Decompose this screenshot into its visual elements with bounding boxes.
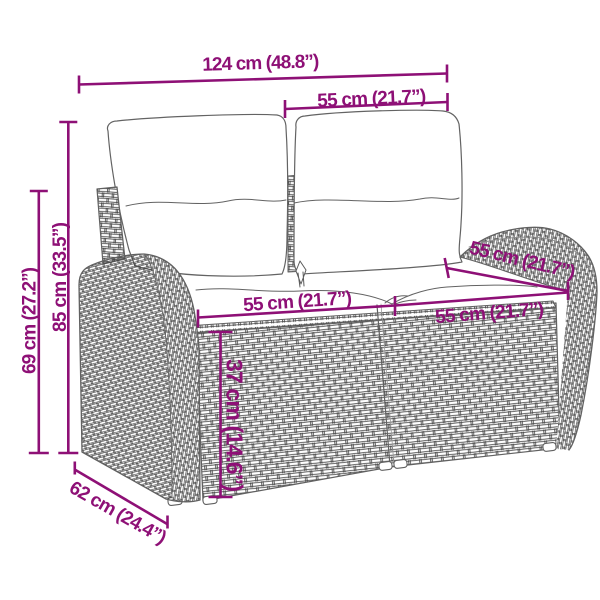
svg-text:124 cm (48.8”): 124 cm (48.8”) (202, 51, 320, 75)
svg-text:85 cm (33.5”): 85 cm (33.5”) (50, 222, 71, 332)
svg-text:55 cm (21.7”): 55 cm (21.7”) (317, 86, 427, 112)
svg-text:37 cm (14.6”): 37 cm (14.6”) (222, 359, 248, 492)
svg-text:69 cm (27.2”): 69 cm (27.2”) (20, 267, 41, 374)
